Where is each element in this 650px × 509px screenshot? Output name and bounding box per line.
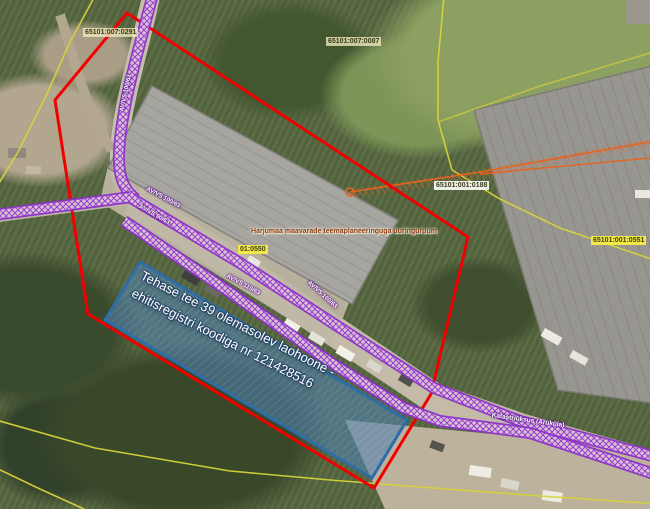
parcel-label: 65101:007:0087	[326, 37, 381, 46]
small-building	[626, 0, 650, 24]
parcel-label: 65101:001:0188	[434, 181, 489, 190]
survey-area-label: Harjumaa maavarade teemaplaneeringuga uu…	[248, 228, 440, 235]
parcel-label-highlighted: 65101:001:0551	[591, 236, 646, 245]
map-viewport[interactable]: 65101:007:0291 65101:007:0087 65101:001:…	[0, 0, 650, 509]
parcel-label-highlighted: 01:0550	[238, 245, 268, 254]
parcel-label: 65101:007:0291	[83, 28, 138, 37]
factory-roof	[474, 64, 650, 404]
map-overlay-layers	[0, 0, 650, 509]
